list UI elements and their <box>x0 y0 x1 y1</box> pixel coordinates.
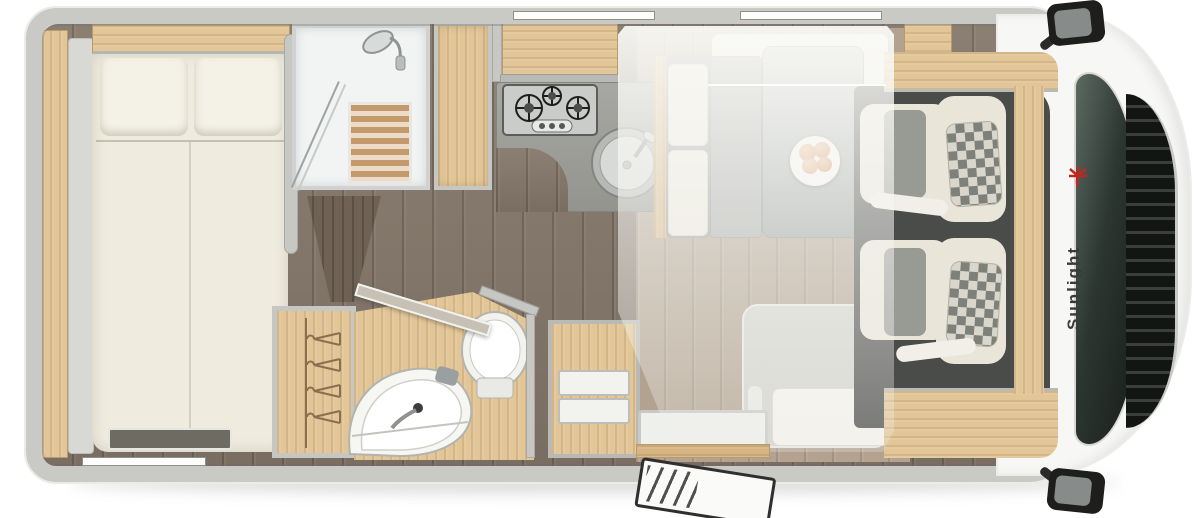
entry-threshold <box>636 444 770 458</box>
cab-dash-wood <box>884 388 1058 458</box>
door-louvre <box>642 465 699 509</box>
window-top-dinette <box>740 11 882 20</box>
front-grille <box>1126 94 1178 428</box>
mirror-glass <box>1054 475 1093 507</box>
mirror-glass <box>1054 8 1093 40</box>
window-top-kitchen <box>513 11 655 20</box>
brand-logo: Sunlight <box>1058 164 1098 334</box>
cab-seat-top-headrest <box>945 120 1003 207</box>
cab-side-wood <box>1014 86 1044 394</box>
drop-down-bed-overlay <box>618 26 894 452</box>
window-bottom-bed <box>82 457 206 466</box>
side-mirror-bottom <box>1046 467 1106 515</box>
palm-icon <box>1066 164 1090 188</box>
cab-seat-bottom-headrest <box>945 260 1003 347</box>
side-mirror-top <box>1046 0 1106 47</box>
drop-down-bed-edge <box>708 84 886 86</box>
floorplan-canvas: Sunlight <box>0 0 1200 518</box>
brand-name: Sunlight <box>1064 190 1084 330</box>
